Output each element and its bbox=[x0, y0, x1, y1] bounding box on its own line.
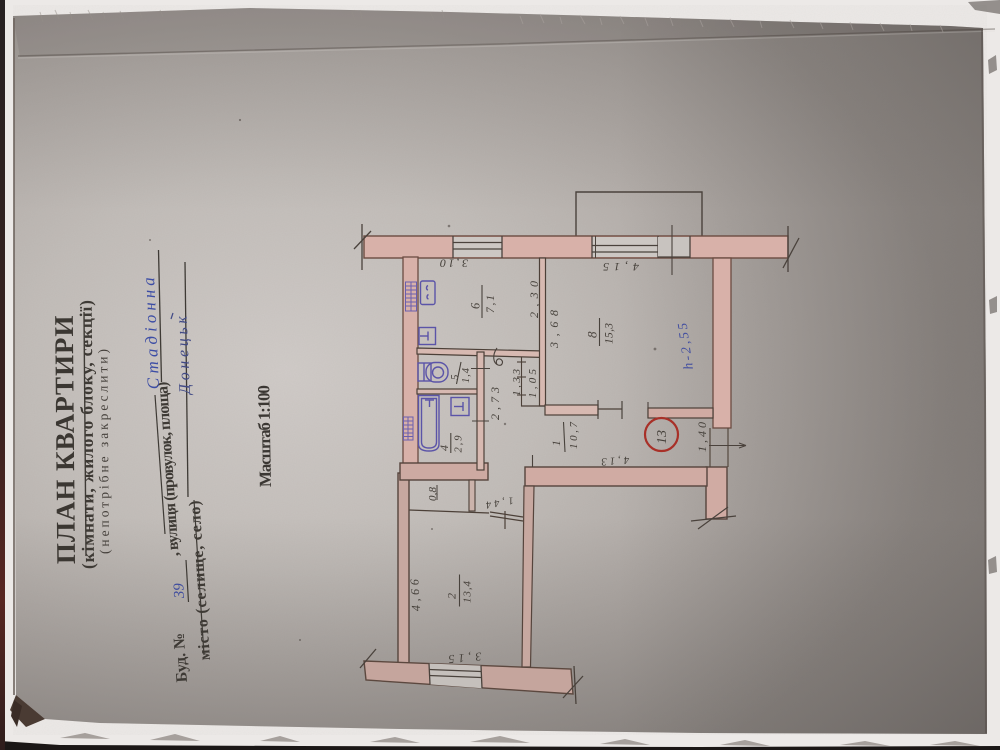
svg-text:7,1: 7,1 bbox=[485, 295, 497, 313]
svg-text:Буд. №: Буд. № bbox=[171, 632, 191, 682]
svg-text:13: 13 bbox=[655, 430, 670, 444]
svg-text:13,4: 13,4 bbox=[462, 581, 474, 604]
svg-text:1,4: 1,4 bbox=[461, 367, 472, 383]
svg-text:(кімнати, жилого блоку, секції: (кімнати, жилого блоку, секції) bbox=[76, 300, 98, 569]
svg-text:1,33: 1,33 bbox=[511, 369, 523, 397]
svg-text:2,9: 2,9 bbox=[454, 435, 465, 453]
svg-text:1: 1 bbox=[551, 440, 563, 446]
svg-text:4: 4 bbox=[437, 445, 451, 451]
svg-text:1,40: 1,40 bbox=[695, 422, 709, 452]
svg-text:Масштаб 1:100: Масштаб 1:100 bbox=[254, 385, 275, 487]
svg-text:(непотрібне закреслити): (непотрібне закреслити) bbox=[95, 349, 112, 554]
svg-text:4,66: 4,66 bbox=[407, 579, 423, 612]
svg-text:15,3: 15,3 bbox=[604, 323, 616, 344]
svg-text:6: 6 bbox=[469, 302, 483, 309]
svg-text:1,05: 1,05 bbox=[527, 369, 539, 399]
svg-text:2: 2 bbox=[445, 593, 459, 599]
svg-text:5: 5 bbox=[449, 374, 461, 380]
svg-text:2,73: 2,73 bbox=[488, 387, 502, 420]
svg-text:8: 8 bbox=[585, 331, 600, 338]
svg-text:39: 39 bbox=[171, 582, 188, 599]
svg-text:4,13: 4,13 bbox=[600, 454, 629, 468]
svg-text:3,10: 3,10 bbox=[440, 257, 469, 271]
